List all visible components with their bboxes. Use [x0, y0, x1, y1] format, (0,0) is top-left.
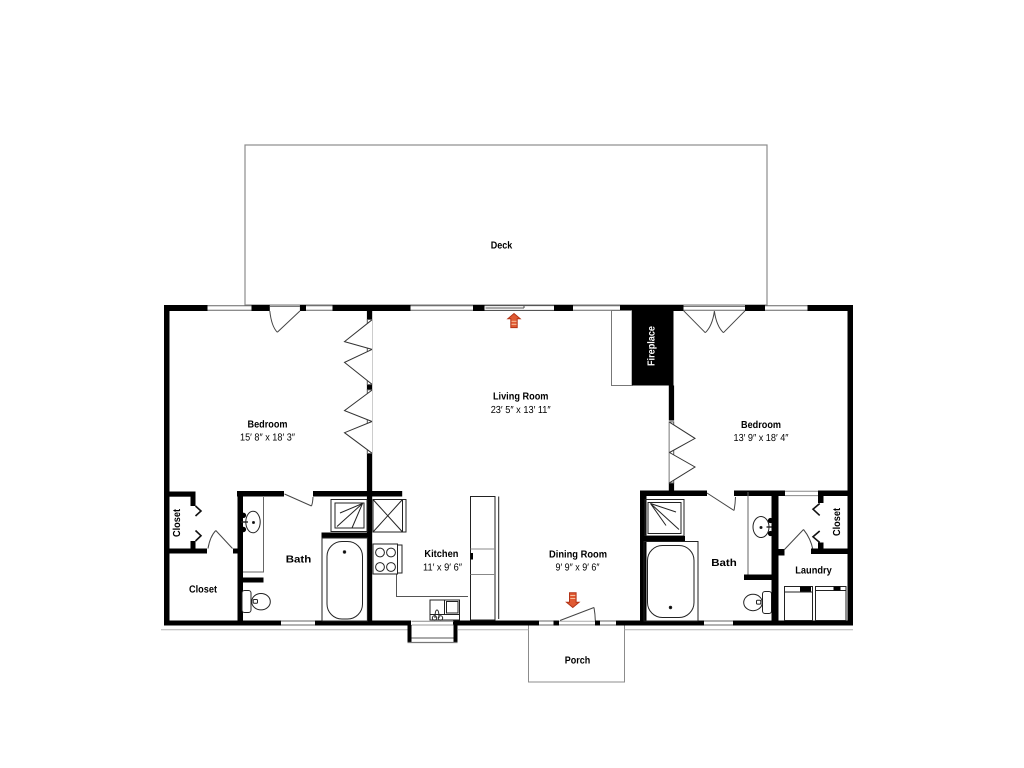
- svg-text:Bedroom: Bedroom: [741, 420, 781, 431]
- svg-text:Closet: Closet: [172, 508, 183, 537]
- svg-text:Bedroom: Bedroom: [248, 420, 288, 431]
- svg-text:9′ 9″ x 9′ 6″: 9′ 9″ x 9′ 6″: [556, 563, 600, 574]
- svg-text:Dining Room: Dining Room: [549, 549, 607, 560]
- svg-text:Kitchen: Kitchen: [424, 549, 458, 560]
- svg-text:13′ 9″ x 18′ 4″: 13′ 9″ x 18′ 4″: [734, 433, 789, 444]
- svg-text:Closet: Closet: [832, 507, 843, 536]
- svg-text:Fireplace: Fireplace: [647, 326, 658, 366]
- svg-text:Porch: Porch: [565, 656, 591, 667]
- svg-text:Laundry: Laundry: [795, 566, 832, 577]
- svg-text:Bath: Bath: [711, 558, 737, 569]
- svg-text:23′ 5″ x 13′ 11″: 23′ 5″ x 13′ 11″: [491, 405, 551, 416]
- svg-text:11′ x 9′ 6″: 11′ x 9′ 6″: [423, 562, 462, 573]
- svg-text:Bath: Bath: [286, 555, 312, 566]
- svg-text:Living Room: Living Room: [493, 392, 549, 403]
- svg-text:Closet: Closet: [189, 584, 218, 595]
- svg-text:Deck: Deck: [491, 241, 513, 252]
- svg-text:15′ 8″ x 18′ 3″: 15′ 8″ x 18′ 3″: [240, 433, 295, 444]
